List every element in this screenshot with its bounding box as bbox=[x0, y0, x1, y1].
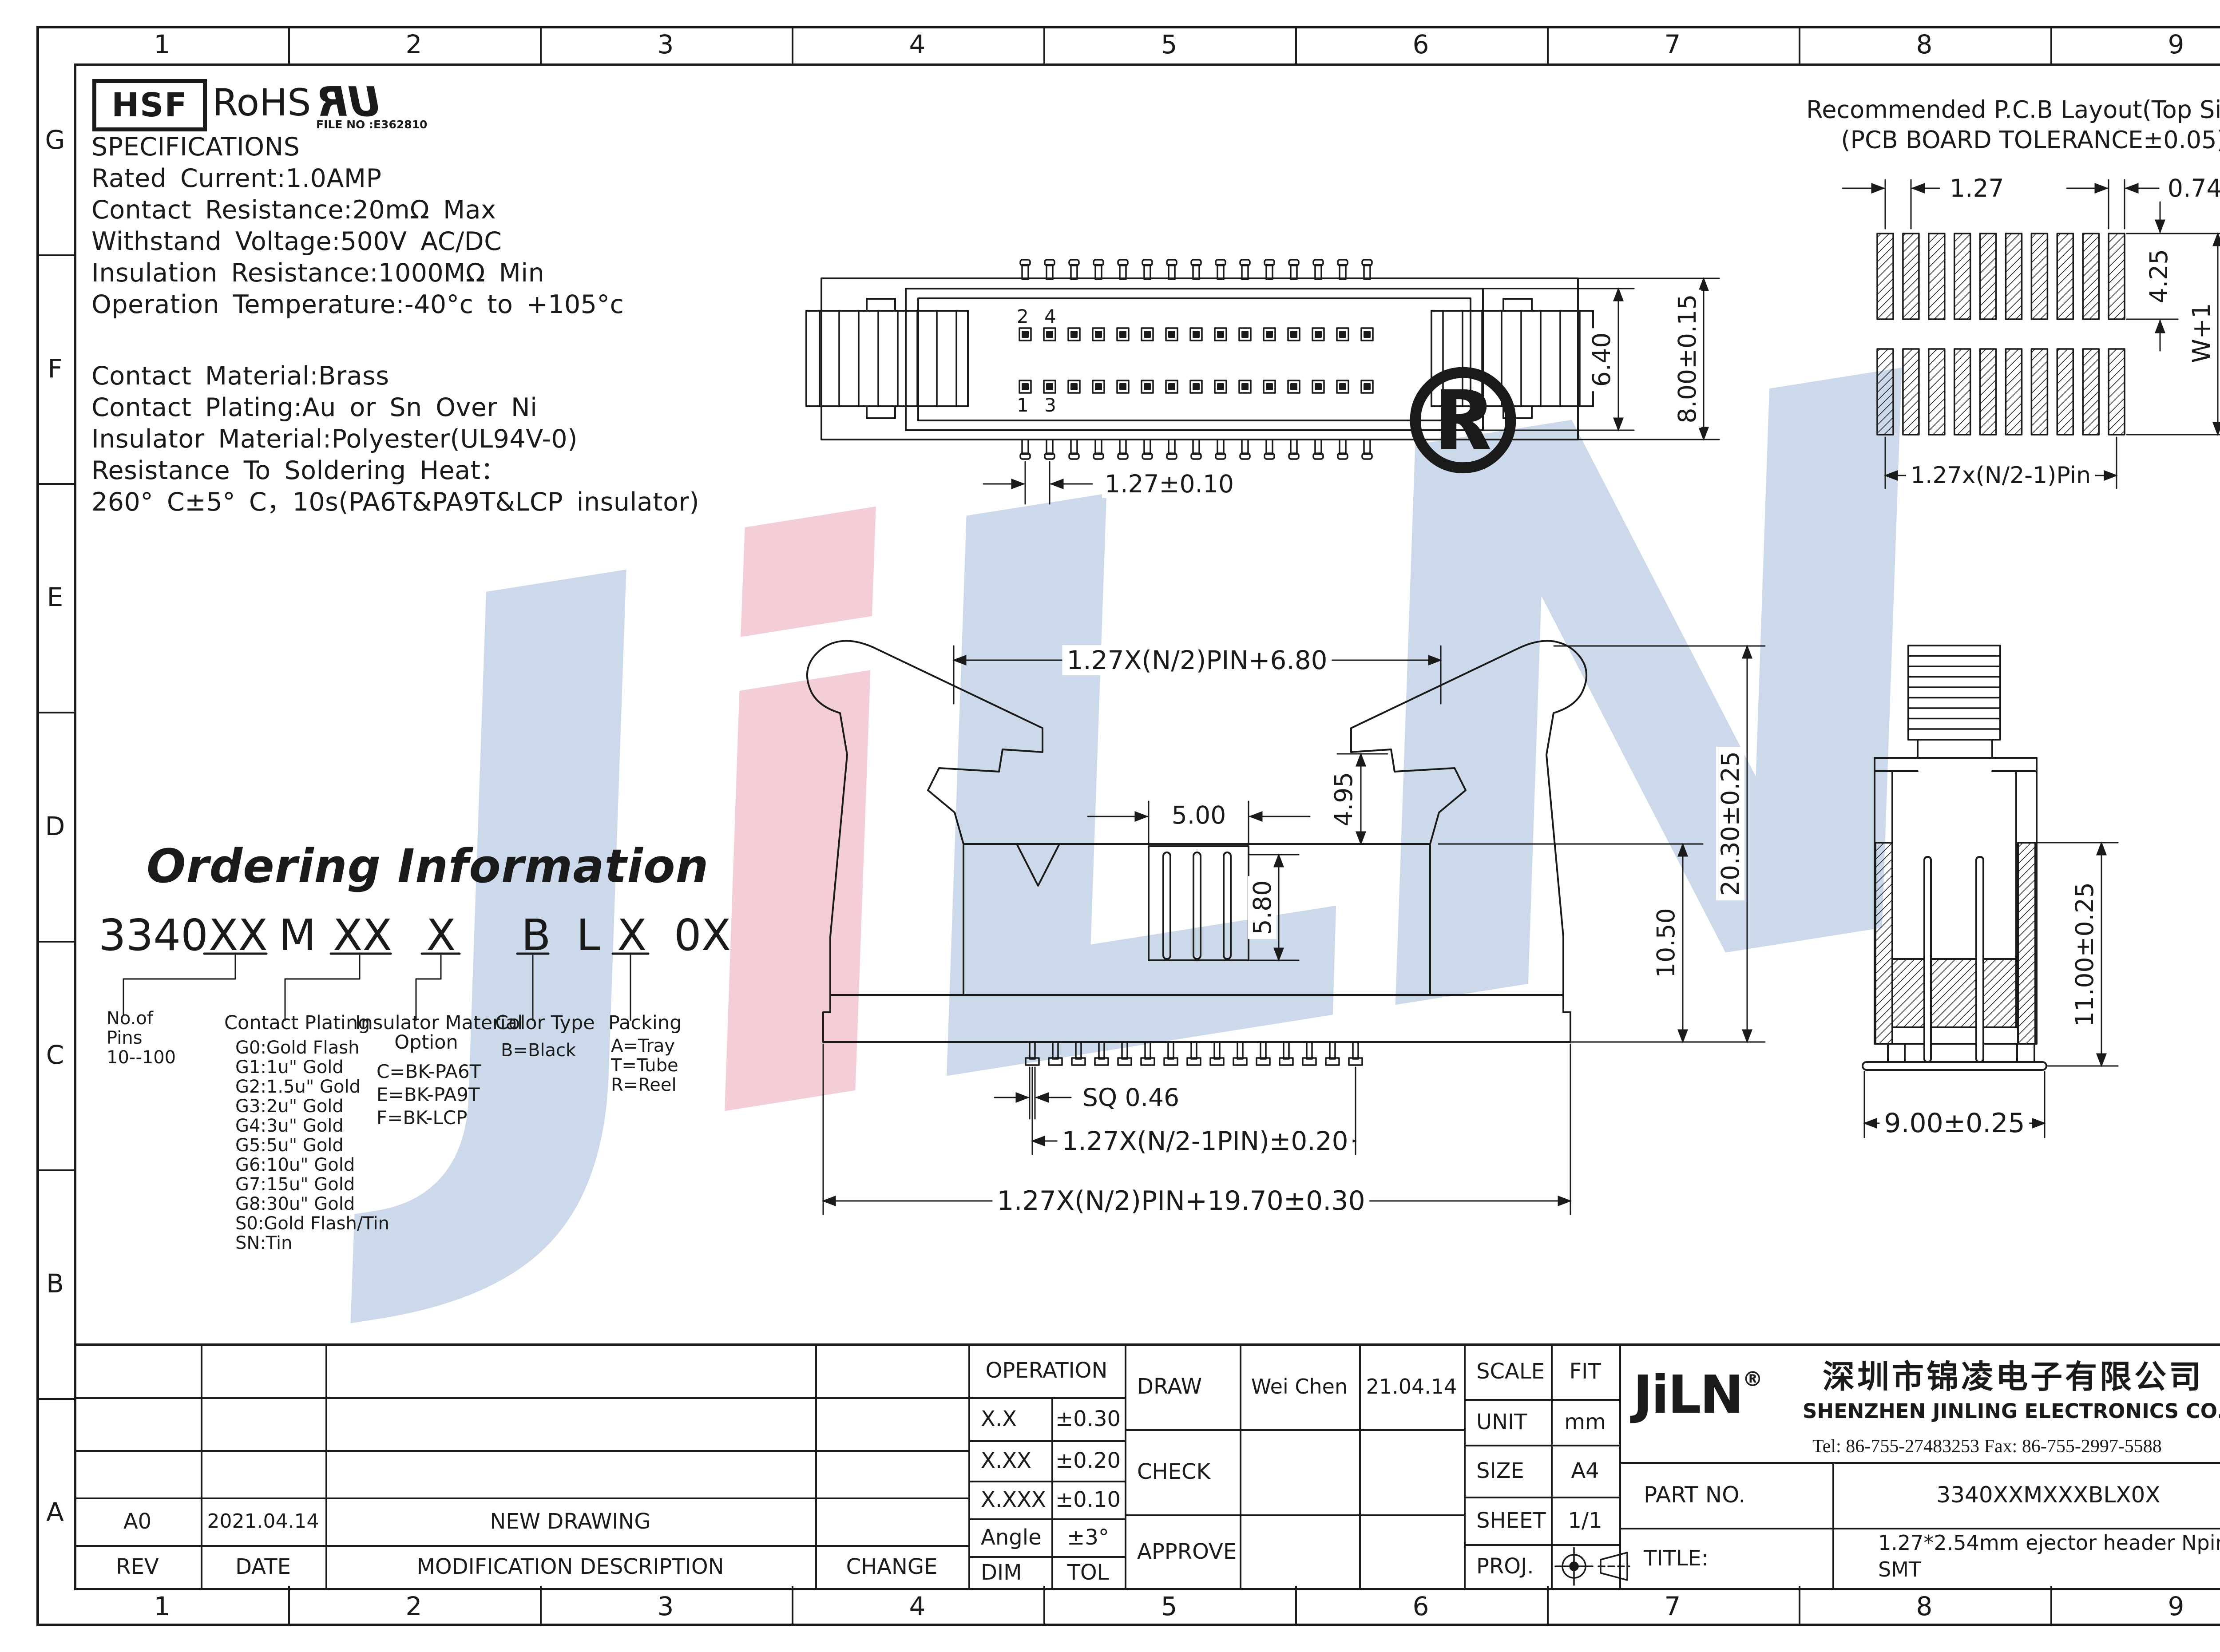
dim-front-latch: 4.95 bbox=[1329, 768, 1358, 831]
plating-option: G6:10u" Gold bbox=[235, 1155, 389, 1175]
border-col-label: 1 bbox=[154, 1591, 170, 1621]
ordering-code-insulator: X bbox=[426, 910, 456, 960]
spec-line: Withstand Voltage:500V AC/DC bbox=[91, 226, 699, 258]
dim-topview-pitch: 1.27±0.10 bbox=[1102, 470, 1237, 498]
hsf-logo: HSF bbox=[92, 79, 207, 131]
dim-pcb-span: 1.27x(N/2-1)Pin bbox=[1906, 462, 2095, 489]
spec-line: 260° C±5° C，10s(PA6T&PA9T&LCP insulator) bbox=[91, 487, 699, 518]
rohs-logo: RoHS bbox=[212, 81, 311, 124]
operation-header: OPERATION bbox=[968, 1343, 1125, 1397]
border-col-label: 1 bbox=[154, 29, 170, 59]
ordering-pins-line: Pins bbox=[107, 1028, 176, 1048]
ordering-pins-line: 10--100 bbox=[107, 1048, 176, 1067]
modification-header: MODIFICATION DESCRIPTION bbox=[325, 1545, 815, 1589]
pin-numbers-bottom: 1 3 bbox=[1017, 394, 1056, 416]
ordering-code-color: B bbox=[521, 910, 551, 960]
border-col-label: 5 bbox=[1161, 29, 1177, 59]
dim-pcb-row-span: W+1 bbox=[2187, 298, 2216, 367]
part-no-label: PART NO. bbox=[1619, 1462, 1832, 1528]
spec-line: Contact Resistance:20mΩ Max bbox=[91, 194, 699, 226]
approve-label: APPROVE bbox=[1125, 1514, 1240, 1589]
dim-front-total-width: 1.27X(N/2)PIN+19.70±0.30 bbox=[992, 1185, 1369, 1216]
plating-option: G4:3u" Gold bbox=[235, 1116, 389, 1136]
dim-front-tongue-height: 5.80 bbox=[1248, 876, 1276, 939]
dim-pcb-pad-length: 4.25 bbox=[2145, 245, 2173, 308]
insulator-option: E=BK-PA9T bbox=[377, 1083, 481, 1106]
ordering-plating-list: G0:Gold Flash G1:1u" Gold G2:1.5u" Gold … bbox=[235, 1038, 389, 1253]
proj-label: PROJ. bbox=[1464, 1544, 1551, 1589]
size-label: SIZE bbox=[1464, 1445, 1551, 1497]
spec-line: Insulation Resistance:1000MΩ Min bbox=[91, 258, 699, 289]
ordering-packing-title: Packing bbox=[608, 1013, 682, 1033]
spec-line: SPECIFICATIONS bbox=[91, 131, 699, 163]
ordering-packing-list: A=Tray T=Tube R=Reel bbox=[611, 1036, 678, 1095]
tol-value: ±0.30 bbox=[1051, 1397, 1125, 1440]
company-tel-fax: Tel: 86-755-27483253 Fax: 86-755-2997-55… bbox=[1812, 1436, 2162, 1457]
border-col-label: 4 bbox=[909, 29, 926, 59]
border-col-label: 9 bbox=[2168, 1591, 2184, 1621]
dim-front-total-height: 20.30±0.25 bbox=[1716, 747, 1744, 900]
check-label: CHECK bbox=[1125, 1429, 1240, 1514]
tol-label: X.X bbox=[968, 1397, 1051, 1440]
insulator-title-line: Insulator Material bbox=[355, 1013, 497, 1033]
dim-front-top: 1.27X(N/2)PIN+6.80 bbox=[1062, 645, 1332, 675]
packing-option: A=Tray bbox=[611, 1036, 678, 1056]
border-col-label: 3 bbox=[658, 1591, 674, 1621]
insulator-option: F=BK-LCP bbox=[377, 1106, 481, 1129]
registered-mark-icon: ® bbox=[1742, 1367, 1761, 1391]
ordering-code-packing: X bbox=[617, 910, 646, 960]
border-col-label: 6 bbox=[1413, 1591, 1429, 1621]
drawing-sheet: JiLN ® bbox=[0, 0, 2220, 1652]
unit-label: UNIT bbox=[1464, 1399, 1551, 1445]
ordering-code-0x: 0X bbox=[674, 910, 731, 960]
plating-option: G7:15u" Gold bbox=[235, 1175, 389, 1194]
dim-topview-overall: 8.00±0.15 bbox=[1673, 289, 1701, 428]
border-col-label: 4 bbox=[909, 1591, 926, 1621]
title-label: TITLE: bbox=[1619, 1528, 1832, 1589]
drawing-title-line1: 1.27*2.54mm ejector header Npin bbox=[1878, 1531, 2220, 1555]
registered-mark-watermark: ® bbox=[1390, 337, 1536, 508]
border-row-label: C bbox=[46, 1040, 64, 1070]
tol-value: ±3° bbox=[1051, 1518, 1125, 1556]
tol-value: ±0.10 bbox=[1051, 1481, 1125, 1518]
dim-front-pin-span: 1.27X(N/2-1PIN)±0.20 bbox=[1058, 1126, 1353, 1156]
ordering-pins-line: No.of bbox=[107, 1009, 176, 1028]
company-logo: JiLN® bbox=[1633, 1364, 1761, 1425]
plating-option: G2:1.5u" Gold bbox=[235, 1077, 389, 1097]
ordering-insulator-title: Insulator Material Option bbox=[355, 1013, 497, 1052]
border-col-label: 5 bbox=[1161, 1591, 1177, 1621]
company-logo-text: JiLN bbox=[1633, 1364, 1742, 1425]
tol-value: TOL bbox=[1051, 1556, 1125, 1589]
scale-value: FIT bbox=[1551, 1343, 1619, 1399]
drawing-title-line2: SMT bbox=[1878, 1557, 1921, 1581]
spec-line: Resistance To Soldering Heat： bbox=[91, 455, 699, 487]
company-name-cn: 深圳市锦凌电子有限公司 bbox=[1823, 1351, 2204, 1397]
border-row-label: G bbox=[45, 125, 65, 155]
ordering-code-m: M bbox=[279, 910, 316, 960]
sheet-label: SHEET bbox=[1464, 1497, 1551, 1544]
ul-file-number: FILE NO :E362810 bbox=[316, 118, 427, 131]
border-col-label: 3 bbox=[658, 29, 674, 59]
packing-option: T=Tube bbox=[611, 1056, 678, 1075]
drawn-date: 21.04.14 bbox=[1359, 1343, 1464, 1429]
dim-side-width: 9.00±0.25 bbox=[1879, 1108, 2029, 1139]
draw-label: DRAW bbox=[1125, 1343, 1240, 1429]
spec-line: Contact Plating:Au or Sn Over Ni bbox=[91, 392, 699, 424]
size-value: A4 bbox=[1551, 1445, 1619, 1497]
dim-front-mid-height: 10.50 bbox=[1652, 903, 1680, 982]
drawn-by: Wei Chen bbox=[1240, 1343, 1359, 1429]
pcb-title: Recommended P.C.B Layout(Top Side) bbox=[1802, 96, 2220, 124]
dim-front-sq: SQ 0.46 bbox=[1080, 1083, 1182, 1112]
date-header: DATE bbox=[201, 1545, 325, 1589]
ordering-insulator-list: C=BK-PA6T E=BK-PA9T F=BK-LCP bbox=[377, 1060, 481, 1129]
border-col-label: 7 bbox=[1665, 29, 1681, 59]
ordering-code-pins: XX bbox=[209, 910, 268, 960]
ordering-color-value: B=Black bbox=[501, 1041, 576, 1060]
border-col-label: 7 bbox=[1665, 1591, 1681, 1621]
spec-line: Rated Current:1.0AMP bbox=[91, 163, 699, 194]
border-row-label: D bbox=[45, 811, 65, 841]
spec-line: Insulator Material:Polyester(UL94V-0) bbox=[91, 424, 699, 455]
border-col-label: 6 bbox=[1413, 29, 1429, 59]
ordering-code-3340: 3340 bbox=[99, 910, 208, 960]
dim-front-tongue-width: 5.00 bbox=[1167, 801, 1230, 829]
rev-description-value: NEW DRAWING bbox=[325, 1497, 815, 1545]
sheet-value: 1/1 bbox=[1551, 1497, 1619, 1544]
insulator-option: C=BK-PA6T bbox=[377, 1060, 481, 1083]
packing-option: R=Reel bbox=[611, 1075, 678, 1095]
border-col-label: 2 bbox=[406, 29, 422, 59]
pin-numbers-top: 2 4 bbox=[1017, 305, 1056, 327]
pcb-subtitle: (PCB BOARD TOLERANCE±0.05) bbox=[1836, 126, 2220, 154]
border-row-label: A bbox=[46, 1497, 64, 1527]
dim-topview-body: 6.40 bbox=[1587, 328, 1616, 391]
dim-pcb-pad-width: 0.74 bbox=[2165, 174, 2220, 202]
dim-side-height: 11.00±0.25 bbox=[2070, 878, 2099, 1031]
plating-option: S0:Gold Flash/Tin bbox=[235, 1214, 389, 1233]
tol-value: ±0.20 bbox=[1051, 1440, 1125, 1481]
dim-pcb-pitch: 1.27 bbox=[1947, 174, 2006, 202]
border-col-label: 8 bbox=[1916, 1591, 1933, 1621]
tol-label: DIM bbox=[968, 1556, 1051, 1589]
rev-value: A0 bbox=[74, 1497, 201, 1545]
border-row-label: F bbox=[48, 353, 62, 384]
ordering-plating-title: Contact Plating bbox=[224, 1013, 370, 1033]
border-col-label: 2 bbox=[406, 1591, 422, 1621]
company-name-en: SHENZHEN JINLING ELECTRONICS CO.,LTD bbox=[1803, 1399, 2220, 1423]
rev-header: REV bbox=[74, 1545, 201, 1589]
plating-option: G3:2u" Gold bbox=[235, 1097, 389, 1116]
plating-option: G8:30u" Gold bbox=[235, 1194, 389, 1214]
spec-line: Contact Material:Brass bbox=[91, 361, 699, 392]
border-row-label: E bbox=[47, 582, 63, 612]
border-row-label: B bbox=[46, 1268, 64, 1299]
plating-option: SN:Tin bbox=[235, 1233, 389, 1253]
plating-option: G5:5u" Gold bbox=[235, 1136, 389, 1155]
rev-date-value: 2021.04.14 bbox=[201, 1497, 325, 1545]
tol-label: Angle bbox=[968, 1518, 1051, 1556]
border-col-label: 8 bbox=[1916, 29, 1933, 59]
tol-label: X.XX bbox=[968, 1440, 1051, 1481]
spec-line: Operation Temperature:-40°c to +105°c bbox=[91, 289, 699, 321]
tol-label: X.XXX bbox=[968, 1481, 1051, 1518]
ordering-code-l: L bbox=[576, 910, 600, 960]
insulator-title-line: Option bbox=[355, 1033, 497, 1052]
ordering-color-title: Color Type bbox=[495, 1013, 595, 1033]
ordering-title: Ordering Information bbox=[147, 839, 709, 893]
ordering-code-plating: XX bbox=[333, 910, 392, 960]
part-no-value: 3340XXMXXXBLX0X bbox=[1832, 1462, 2220, 1528]
specifications-block: SPECIFICATIONS Rated Current:1.0AMP Cont… bbox=[91, 131, 699, 518]
change-header: CHANGE bbox=[815, 1545, 968, 1589]
scale-label: SCALE bbox=[1464, 1343, 1551, 1399]
unit-value: mm bbox=[1551, 1399, 1619, 1445]
ordering-pins-label: No.of Pins 10--100 bbox=[107, 1009, 176, 1067]
border-col-label: 9 bbox=[2168, 29, 2184, 59]
plating-option: G1:1u" Gold bbox=[235, 1058, 389, 1077]
